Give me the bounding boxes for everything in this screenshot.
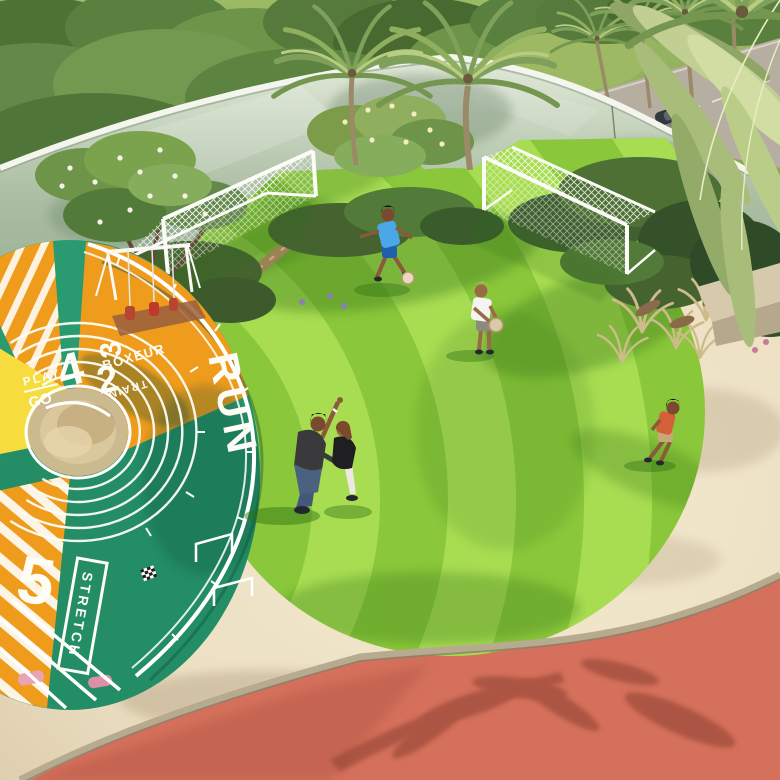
shoe	[294, 506, 310, 514]
playground-aerial-render: STRETCH 4 2 3 BOXEUR TRAIN PLAY GO RUN 5	[0, 0, 780, 780]
soccer-ball	[402, 272, 414, 284]
hand	[337, 397, 343, 403]
punch-bag	[125, 306, 135, 320]
head	[311, 417, 326, 432]
head	[667, 402, 680, 415]
head	[382, 209, 395, 222]
soccer-ball	[489, 318, 503, 332]
person-shadow	[354, 283, 410, 297]
sand-highlight	[44, 426, 92, 458]
person-shadow	[324, 505, 372, 519]
shoe	[346, 495, 358, 501]
punch-bag	[149, 302, 159, 316]
scene-canvas: STRETCH 4 2 3 BOXEUR TRAIN PLAY GO RUN 5	[0, 0, 780, 780]
leg	[479, 330, 481, 350]
punch-bag	[169, 298, 178, 311]
head	[475, 285, 488, 298]
